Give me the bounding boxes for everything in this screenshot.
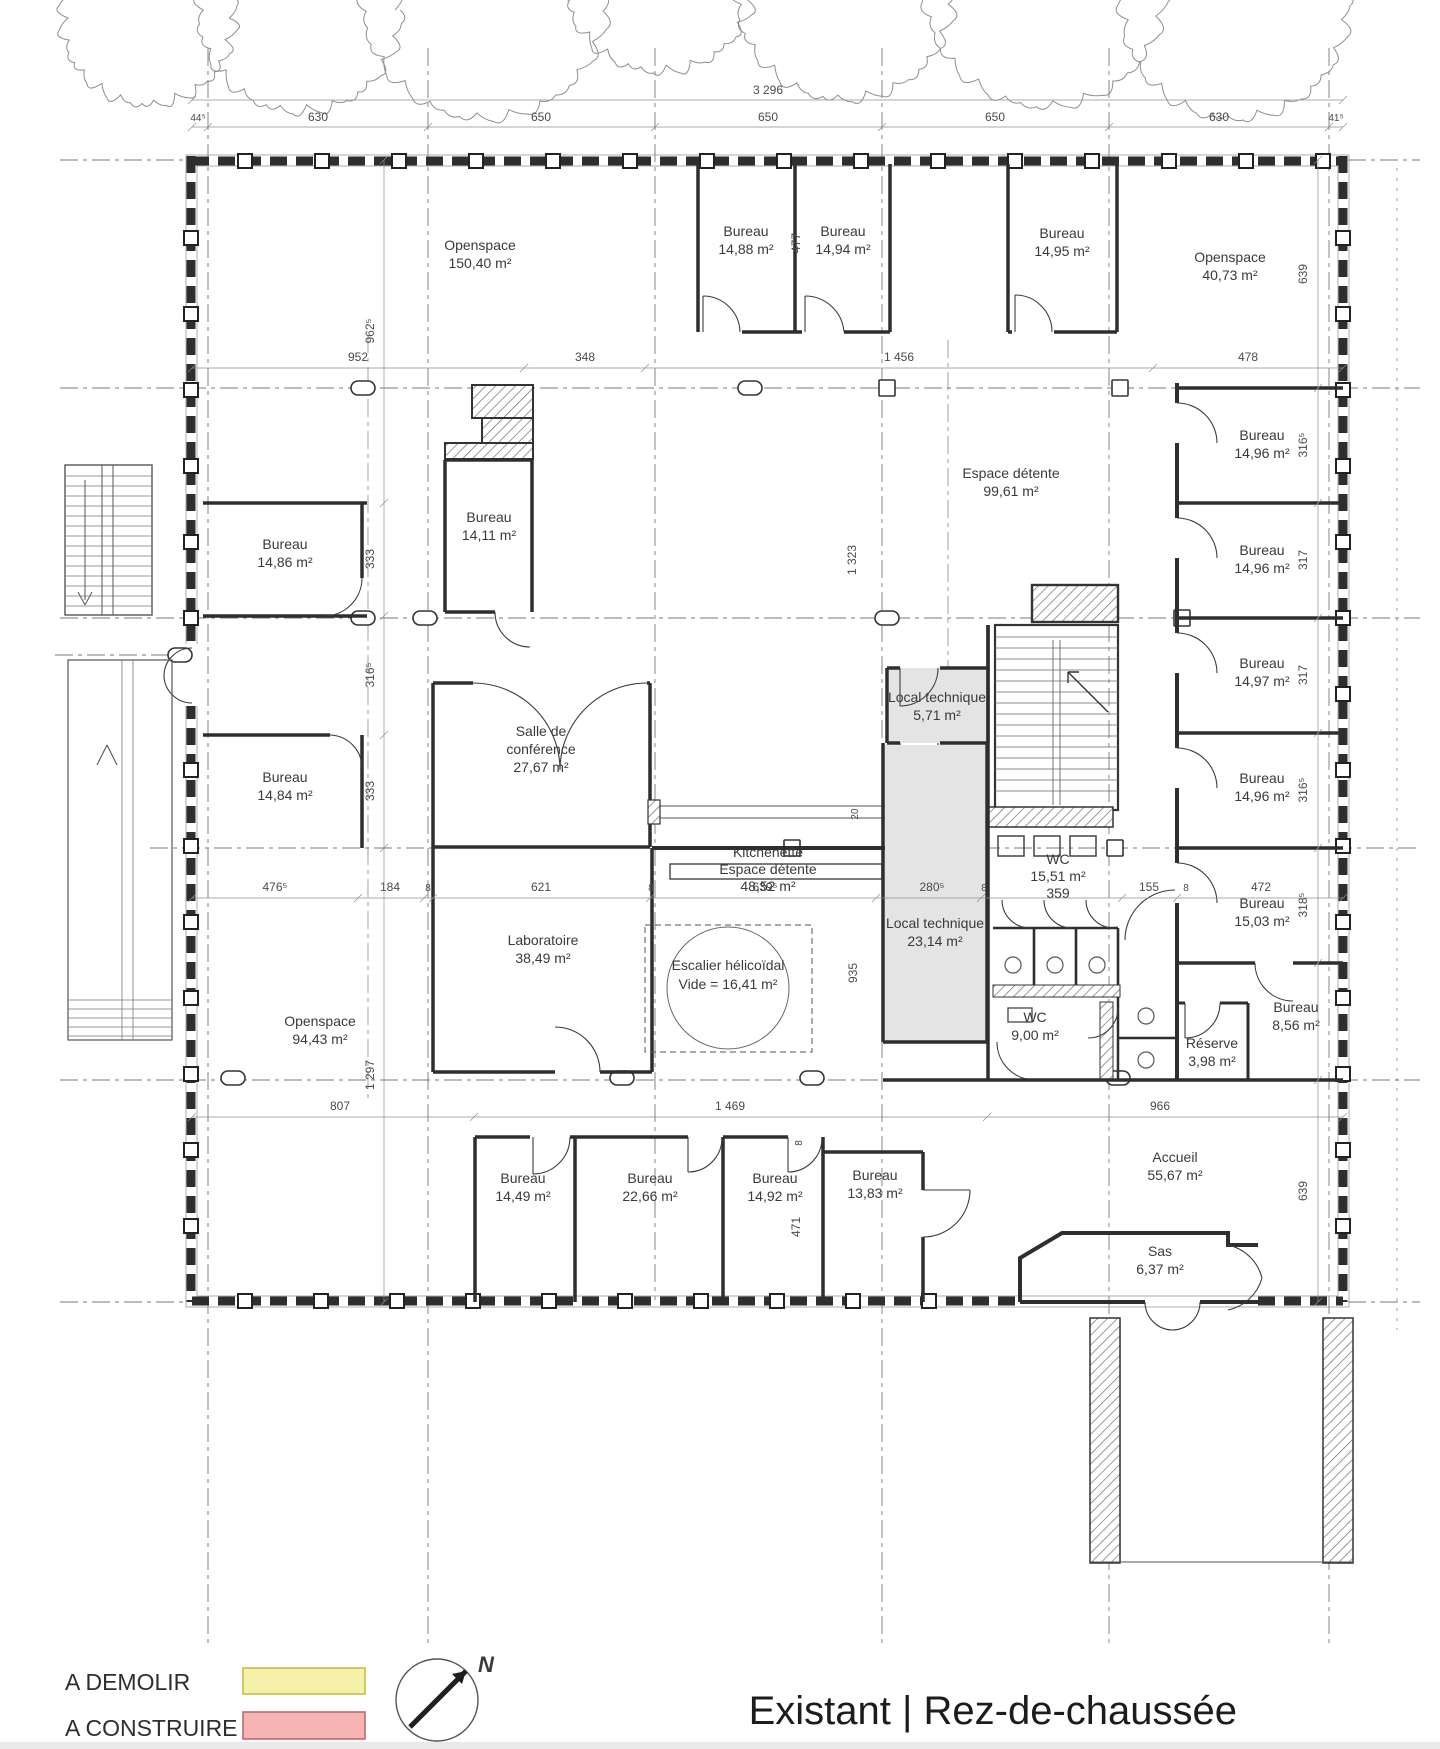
svg-text:Bureau: Bureau [1273, 999, 1318, 1015]
svg-text:318⁵: 318⁵ [1296, 892, 1310, 917]
tree-canopy-outlines [57, 0, 1353, 123]
svg-text:650: 650 [985, 110, 1005, 124]
dim-total: 3 296 [753, 83, 783, 97]
svg-text:Local technique: Local technique [886, 915, 984, 931]
svg-text:6,37 m²: 6,37 m² [1136, 1261, 1184, 1277]
room-openspace-150: Openspace150,40 m² [444, 237, 516, 271]
room-bureau-1497: Bureau14,97 m² [1234, 655, 1290, 689]
north-label: N [478, 1652, 495, 1677]
room-openspace-4073: Openspace40,73 m² [1194, 249, 1266, 283]
svg-text:650: 650 [758, 110, 778, 124]
svg-text:Salle de: Salle de [516, 723, 567, 739]
legend-demolish-label: A DEMOLIR [65, 1669, 190, 1695]
svg-text:807: 807 [330, 1099, 350, 1113]
svg-text:639: 639 [1296, 1181, 1310, 1201]
room-sas: Sas6,37 m² [1136, 1243, 1184, 1277]
svg-text:621: 621 [531, 880, 551, 894]
svg-text:23,14 m²: 23,14 m² [907, 933, 963, 949]
svg-text:478: 478 [1238, 350, 1258, 364]
svg-text:Bureau: Bureau [1039, 225, 1084, 241]
svg-text:8: 8 [425, 883, 431, 894]
svg-text:14,97 m²: 14,97 m² [1234, 673, 1290, 689]
room-laboratoire: Laboratoire38,49 m² [508, 932, 579, 966]
north-arrow-icon: N [396, 1652, 495, 1741]
svg-text:1 456: 1 456 [884, 350, 914, 364]
svg-text:Sas: Sas [1148, 1243, 1172, 1259]
svg-text:27,67 m²: 27,67 m² [513, 759, 569, 775]
svg-text:40,73 m²: 40,73 m² [1202, 267, 1258, 283]
svg-text:155: 155 [1139, 880, 1159, 894]
svg-text:8: 8 [794, 1140, 805, 1146]
svg-text:Escalier hélicoïdal: Escalier hélicoïdal [672, 957, 785, 973]
room-bureau-1449: Bureau14,49 m² [495, 1170, 551, 1204]
svg-text:3,98 m²: 3,98 m² [1188, 1053, 1236, 1069]
svg-text:14,88 m²: 14,88 m² [718, 241, 774, 257]
svg-text:14,11 m²: 14,11 m² [462, 527, 517, 543]
svg-text:44⁵: 44⁵ [190, 113, 205, 124]
svg-text:Kitchenette: Kitchenette [733, 844, 803, 860]
svg-text:14,84 m²: 14,84 m² [257, 787, 313, 803]
svg-text:Bureau: Bureau [500, 1170, 545, 1186]
svg-text:Bureau: Bureau [852, 1167, 897, 1183]
svg-text:41⁵: 41⁵ [1328, 113, 1343, 124]
room-wc-900: WC9,00 m² [1011, 1009, 1059, 1043]
svg-text:966: 966 [1150, 1099, 1170, 1113]
svg-text:94,43 m²: 94,43 m² [292, 1031, 348, 1047]
room-bureau-1494: Bureau14,94 m² [815, 223, 871, 257]
svg-text:962⁵: 962⁵ [363, 318, 377, 343]
svg-text:316⁵: 316⁵ [1296, 777, 1310, 802]
room-bureau-2266: Bureau22,66 m² [622, 1170, 678, 1204]
room-bureau-1484: Bureau14,84 m² [257, 769, 313, 803]
svg-text:639: 639 [1296, 264, 1310, 284]
svg-text:472: 472 [1251, 880, 1271, 894]
room-espace-detente: Espace détente99,61 m² [962, 465, 1060, 499]
room-bureau-1486: Bureau14,86 m² [257, 536, 313, 570]
svg-text:9,00 m²: 9,00 m² [1011, 1027, 1059, 1043]
svg-text:14,96 m²: 14,96 m² [1234, 445, 1290, 461]
svg-text:184: 184 [380, 880, 400, 894]
svg-text:650: 650 [531, 110, 551, 124]
floor-plan-drawing: 3 296 44⁵ 630 650 650 650 630 41⁵ [0, 0, 1440, 1749]
svg-text:WC: WC [1046, 851, 1069, 867]
room-salle-conference: Salle deconférence27,67 m² [506, 723, 575, 775]
svg-text:20: 20 [850, 808, 861, 820]
svg-text:WC: WC [1023, 1009, 1046, 1025]
svg-text:8,56 m²: 8,56 m² [1272, 1017, 1320, 1033]
svg-text:Bureau: Bureau [820, 223, 865, 239]
svg-text:14,96 m²: 14,96 m² [1234, 788, 1290, 804]
legend-build-swatch [243, 1712, 365, 1739]
svg-text:Espace détente: Espace détente [962, 465, 1060, 481]
legend: A DEMOLIR A CONSTRUIRE [65, 1668, 365, 1741]
svg-text:Openspace: Openspace [1194, 249, 1266, 265]
dimension-annotations: 952 348 1 456 478 476⁵ 184 8 621 8 639⁵ … [188, 156, 1347, 1306]
svg-text:280⁵: 280⁵ [920, 880, 945, 894]
svg-text:Bureau: Bureau [1239, 655, 1284, 671]
svg-text:22,66 m²: 22,66 m² [622, 1188, 678, 1204]
svg-text:477: 477 [789, 233, 803, 253]
svg-text:476⁵: 476⁵ [263, 880, 288, 894]
svg-text:Local technique: Local technique [888, 689, 986, 705]
room-bureau-856: Bureau8,56 m² [1272, 999, 1320, 1033]
svg-text:348: 348 [575, 350, 595, 364]
floor-plan-page: 3 296 44⁵ 630 650 650 650 630 41⁵ [0, 0, 1440, 1749]
svg-text:317: 317 [1296, 550, 1310, 570]
svg-text:471: 471 [789, 1217, 803, 1237]
svg-text:1 323: 1 323 [845, 545, 859, 575]
room-bureau-1503: Bureau15,03 m² [1234, 895, 1290, 929]
svg-text:8: 8 [648, 883, 654, 894]
svg-text:14,86 m²: 14,86 m² [257, 554, 313, 570]
room-reserve: Réserve3,98 m² [1186, 1035, 1238, 1069]
svg-text:Laboratoire: Laboratoire [508, 932, 579, 948]
room-bureau-1383: Bureau13,83 m² [847, 1167, 903, 1201]
svg-text:55,67 m²: 55,67 m² [1147, 1167, 1203, 1183]
room-bureau-1496a: Bureau14,96 m² [1234, 427, 1290, 461]
svg-text:630: 630 [308, 110, 328, 124]
svg-text:15,51 m²: 15,51 m² [1030, 868, 1086, 884]
svg-text:14,96 m²: 14,96 m² [1234, 560, 1290, 576]
interior-walls [65, 164, 1353, 1563]
svg-text:Accueil: Accueil [1152, 1149, 1197, 1165]
svg-text:Bureau: Bureau [752, 1170, 797, 1186]
room-labels: Openspace150,40 m² Bureau14,88 m² Bureau… [257, 223, 1320, 1277]
svg-text:316⁵: 316⁵ [363, 662, 377, 687]
svg-text:14,92 m²: 14,92 m² [747, 1188, 803, 1204]
svg-text:Bureau: Bureau [466, 509, 511, 525]
svg-text:333: 333 [363, 781, 377, 801]
exterior-walls [182, 154, 1350, 1308]
svg-text:Réserve: Réserve [1186, 1035, 1238, 1051]
svg-text:Openspace: Openspace [444, 237, 516, 253]
svg-text:317: 317 [1296, 665, 1310, 685]
svg-text:Espace détente: Espace détente [719, 861, 817, 877]
svg-text:935: 935 [846, 963, 860, 983]
svg-text:8: 8 [981, 883, 987, 894]
svg-text:15,03 m²: 15,03 m² [1234, 913, 1290, 929]
svg-text:Bureau: Bureau [1239, 542, 1284, 558]
legend-demolish-swatch [243, 1668, 365, 1694]
svg-text:14,95 m²: 14,95 m² [1034, 243, 1090, 259]
svg-text:Vide = 16,41 m²: Vide = 16,41 m² [679, 976, 778, 992]
drawing-title: Existant | Rez-de-chaussée [749, 1689, 1237, 1733]
svg-text:639⁵: 639⁵ [753, 880, 778, 894]
svg-text:150,40 m²: 150,40 m² [448, 255, 511, 271]
top-dimensions: 3 296 44⁵ 630 650 650 650 630 41⁵ [188, 83, 1347, 131]
svg-text:13,83 m²: 13,83 m² [847, 1185, 903, 1201]
svg-text:Bureau: Bureau [1239, 770, 1284, 786]
room-bureau-1488: Bureau14,88 m² [718, 223, 774, 257]
room-bureau-1496c: Bureau14,96 m² [1234, 770, 1290, 804]
svg-text:99,61 m²: 99,61 m² [983, 483, 1039, 499]
room-wc-1551: WC15,51 m²359 [1030, 851, 1086, 901]
svg-text:8: 8 [1183, 883, 1189, 894]
room-openspace-9443: Openspace94,43 m² [284, 1013, 356, 1047]
svg-text:conférence: conférence [506, 741, 575, 757]
svg-text:Bureau: Bureau [1239, 427, 1284, 443]
svg-text:38,49 m²: 38,49 m² [515, 950, 571, 966]
svg-text:333: 333 [363, 549, 377, 569]
svg-text:14,49 m²: 14,49 m² [495, 1188, 551, 1204]
svg-text:Bureau: Bureau [627, 1170, 672, 1186]
svg-text:Bureau: Bureau [262, 769, 307, 785]
room-bureau-1411: Bureau14,11 m² [462, 509, 517, 543]
svg-text:1 297: 1 297 [363, 1060, 377, 1090]
svg-text:316⁵: 316⁵ [1296, 432, 1310, 457]
room-accueil: Accueil55,67 m² [1147, 1149, 1203, 1183]
legend-build-label: A CONSTRUIRE [65, 1715, 238, 1741]
room-bureau-1496b: Bureau14,96 m² [1234, 542, 1290, 576]
svg-text:1 469: 1 469 [715, 1099, 745, 1113]
svg-text:630: 630 [1209, 110, 1229, 124]
svg-text:Bureau: Bureau [1239, 895, 1284, 911]
svg-text:Bureau: Bureau [723, 223, 768, 239]
room-bureau-1492: Bureau14,92 m² [747, 1170, 803, 1204]
svg-text:5,71 m²: 5,71 m² [913, 707, 961, 723]
svg-text:Openspace: Openspace [284, 1013, 356, 1029]
svg-text:Bureau: Bureau [262, 536, 307, 552]
svg-text:14,94 m²: 14,94 m² [815, 241, 871, 257]
svg-text:952: 952 [348, 350, 368, 364]
page-bottom-strip [0, 1742, 1440, 1749]
svg-text:359: 359 [1046, 885, 1070, 901]
room-bureau-1495: Bureau14,95 m² [1034, 225, 1090, 259]
room-escalier-helicoidal: Escalier hélicoïdalVide = 16,41 m² [672, 957, 785, 992]
